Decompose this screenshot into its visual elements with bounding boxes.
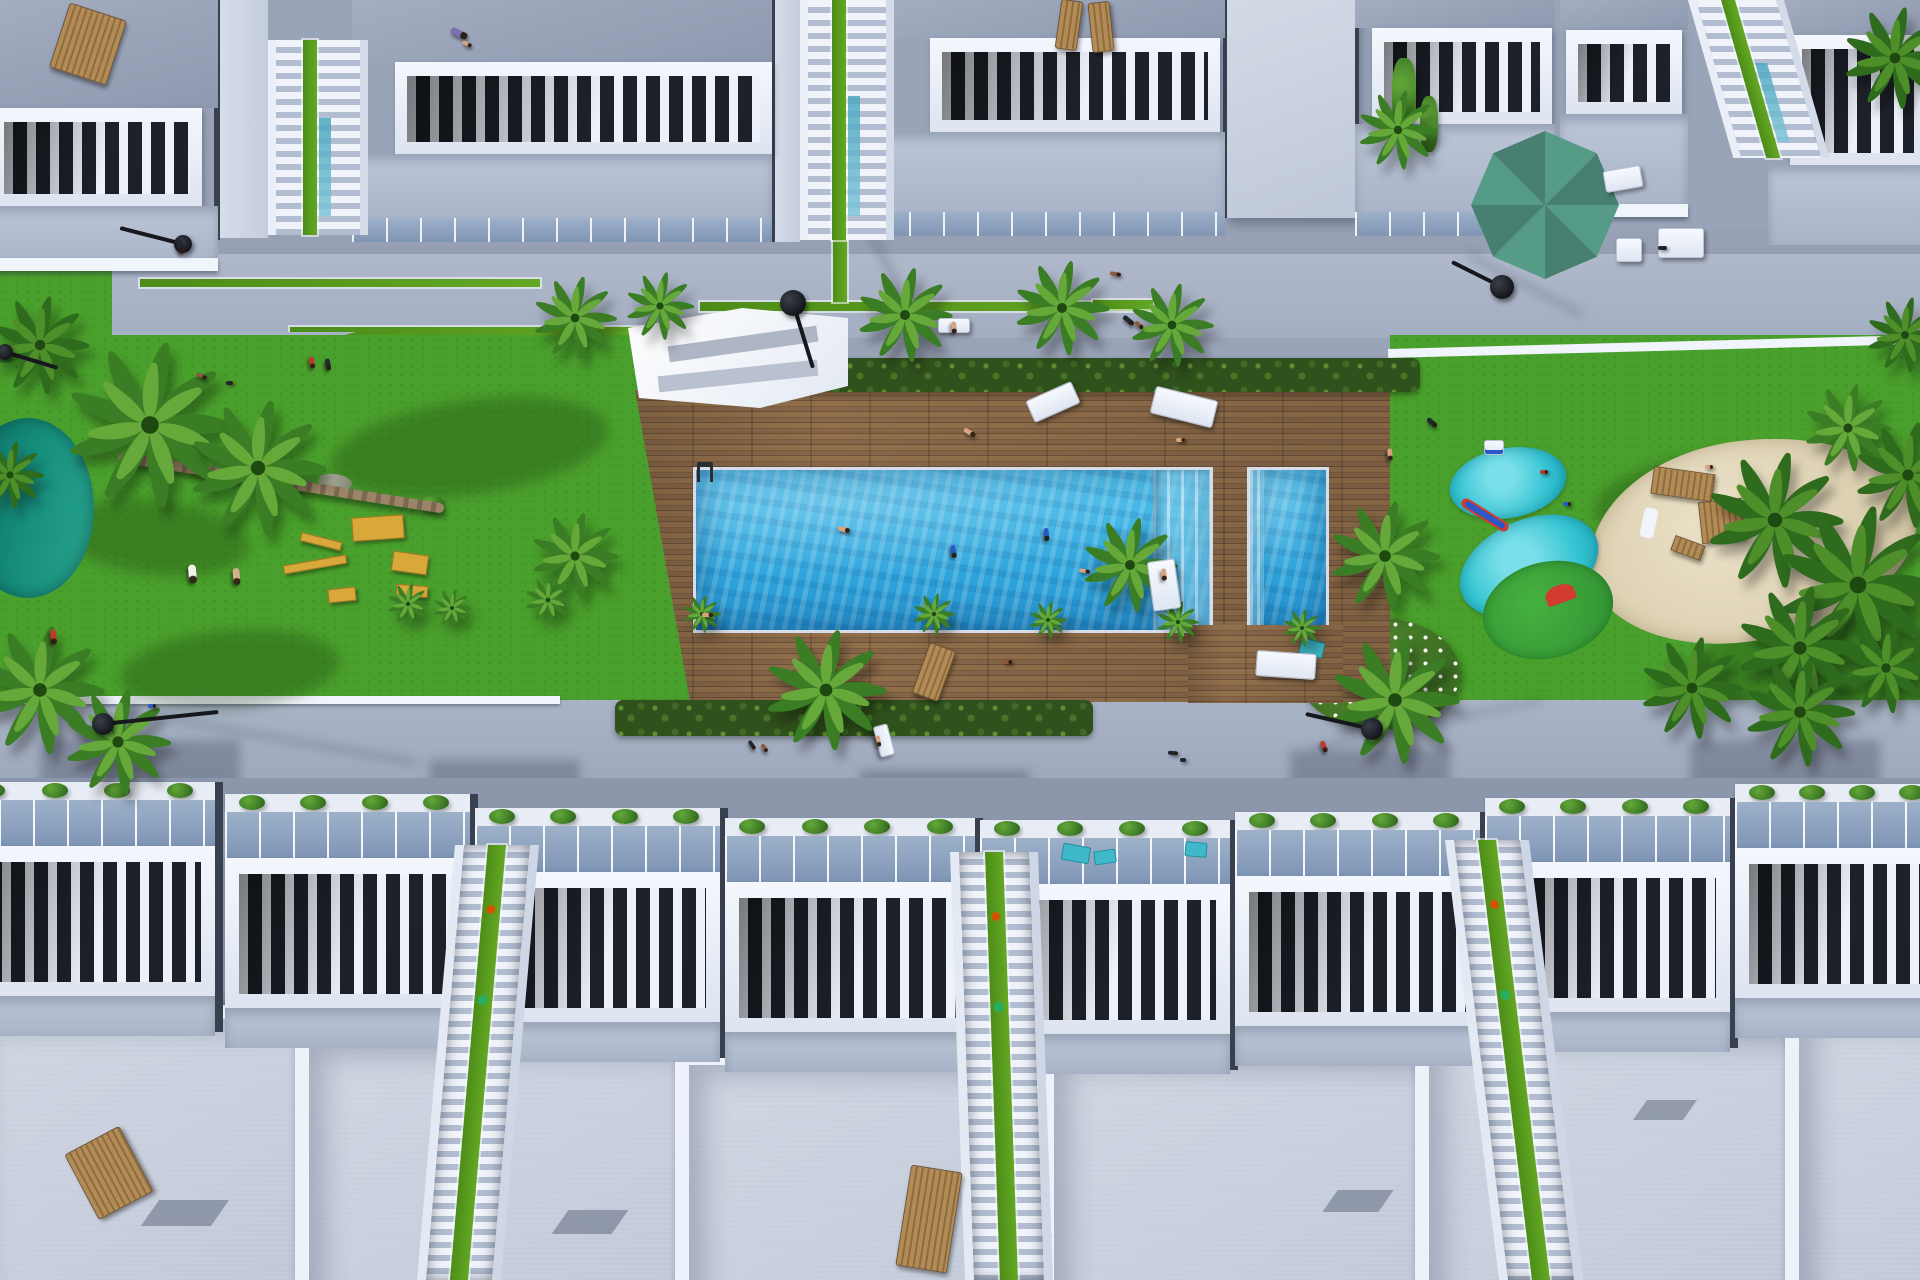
planter-bush (1119, 821, 1145, 836)
rooftop (352, 0, 772, 62)
palm-tree (624, 270, 696, 342)
rooftop-railing (395, 62, 772, 154)
planter-bush (1799, 785, 1825, 800)
person (50, 629, 57, 644)
terrace-floor (225, 1008, 470, 1048)
palm-tree (1838, 620, 1920, 716)
kids-pool-steps (1250, 470, 1264, 628)
townhouse-roof (1040, 1045, 1433, 1280)
alley-green-strip (985, 852, 1018, 1280)
person (1387, 448, 1393, 460)
person (226, 381, 233, 385)
person (1563, 502, 1571, 506)
terrace-floor (1735, 998, 1920, 1038)
pool-ladder (710, 466, 713, 482)
railing-balusters (4, 122, 190, 194)
townhouse-roof (1785, 1003, 1920, 1280)
terrace-railing (725, 882, 975, 1032)
planter-bush (1372, 813, 1398, 828)
street-lamp-head (92, 713, 114, 735)
street-lamp-head (1490, 275, 1514, 299)
planter-bush (1499, 799, 1525, 814)
scene-viewport (0, 0, 1920, 1280)
terrace-floor (725, 1032, 975, 1072)
palm-tree (0, 439, 46, 511)
terrace (1768, 165, 1920, 245)
planter-bush (673, 809, 699, 824)
stair-glass (319, 118, 331, 216)
planter-bush (1433, 813, 1459, 828)
parapet (0, 258, 218, 271)
rooftop-railing (1566, 30, 1682, 114)
rooftop (875, 0, 1225, 38)
balcony-glass (225, 812, 470, 858)
street-lamp-head (780, 290, 806, 316)
palm-tree (1638, 634, 1746, 742)
palm-tree (1841, 4, 1920, 112)
planter-bush (1849, 785, 1875, 800)
rooftop (1355, 0, 1555, 28)
water-toy-car (1484, 440, 1504, 455)
person (1705, 465, 1713, 469)
planter-bush (423, 795, 449, 810)
person (702, 613, 713, 617)
balcony-glass (1235, 830, 1480, 876)
railing-balusters (239, 874, 456, 994)
palm-tree (762, 626, 890, 754)
rooftop (1560, 0, 1688, 30)
towel (1184, 841, 1207, 858)
palm-tree (1327, 498, 1443, 614)
terrace-railing (0, 846, 215, 996)
planter-bush (1057, 821, 1083, 836)
railing-balusters (407, 76, 760, 142)
alley-green-strip (450, 845, 506, 1280)
railing-balusters (942, 52, 1208, 120)
person (1168, 751, 1178, 756)
palm-tree (1028, 600, 1068, 640)
staircase (268, 40, 368, 235)
stair-green-strip (832, 0, 846, 240)
planter-bush (1249, 813, 1275, 828)
palm-tree (524, 576, 572, 624)
stair-green-strip (303, 40, 317, 235)
railing-balusters (1749, 864, 1920, 984)
person (1180, 758, 1186, 762)
person (1003, 660, 1012, 664)
terrace-railing (1235, 876, 1480, 1026)
staircase (800, 0, 894, 240)
balcony-glass (725, 836, 975, 882)
person (1161, 568, 1167, 580)
alley-flower (991, 912, 1000, 921)
person (1658, 246, 1667, 250)
balcony-glass (0, 800, 215, 846)
rooftop-railing (0, 108, 202, 206)
pool-ladder (697, 466, 700, 482)
rooftop-railing (930, 38, 1220, 132)
walkway-planter-strip (140, 279, 540, 287)
planter-bush (802, 819, 828, 834)
gym-equipment (351, 514, 405, 542)
palm-tree (432, 588, 472, 628)
sun-lounger (1255, 650, 1317, 680)
person (188, 564, 198, 584)
walkway-planter-strip (833, 232, 847, 302)
building-wall (772, 0, 800, 242)
person (232, 568, 240, 586)
terrace-floor (1235, 1026, 1480, 1066)
palm-tree (386, 582, 430, 626)
palm-tree (186, 396, 330, 540)
planter-bush (362, 795, 388, 810)
palm-tree (1865, 295, 1920, 375)
railing-balusters (1578, 44, 1670, 102)
terrace-railing (225, 858, 470, 1008)
palm-tree (1852, 419, 1920, 531)
planter-bush (1683, 799, 1709, 814)
building-wall (218, 0, 268, 238)
planter-bush (239, 795, 265, 810)
building-wall (1225, 0, 1357, 218)
person (951, 321, 957, 333)
alley-flower (993, 1002, 1003, 1012)
planter-bush (739, 819, 765, 834)
unit-separator (215, 782, 223, 1032)
sun-lounger (1616, 238, 1642, 262)
palm-tree (1327, 632, 1463, 768)
palm-tree (1282, 608, 1322, 648)
street-lamp-head (1361, 718, 1383, 740)
palm-tree (1356, 88, 1440, 172)
planter-bush (994, 821, 1020, 836)
planter-bush (1622, 799, 1648, 814)
planter-bush (1182, 821, 1208, 836)
railing-balusters (739, 898, 961, 1018)
palm-tree (912, 592, 956, 636)
terrace (875, 132, 1225, 214)
palm-tree (855, 265, 955, 365)
alley-flower (1489, 900, 1499, 909)
person (1043, 528, 1049, 541)
glass-parapet (875, 212, 1225, 236)
railing-balusters (0, 862, 201, 982)
palm-tree (62, 686, 174, 798)
planter-bush (1749, 785, 1775, 800)
planter-bush (489, 809, 515, 824)
stair-alley (950, 852, 1053, 1280)
palm-tree (531, 274, 619, 362)
railing-balusters (1249, 892, 1466, 1012)
terrace-floor (0, 996, 215, 1036)
planter-bush (927, 819, 953, 834)
palm-tree (1012, 258, 1112, 358)
planter-bush (612, 809, 638, 824)
balcony-glass (1735, 802, 1920, 848)
gym-equipment (327, 587, 356, 604)
glass-parapet (352, 218, 772, 242)
person (148, 704, 156, 708)
terrace (352, 154, 772, 220)
planter-bush (1899, 785, 1920, 800)
sun-lounger (1658, 228, 1704, 258)
person (1540, 470, 1548, 474)
person (1176, 438, 1185, 442)
planter-bush (864, 819, 890, 834)
stair-glass (848, 96, 860, 216)
terrace-railing (1735, 848, 1920, 998)
alley-flower (1499, 990, 1510, 1000)
